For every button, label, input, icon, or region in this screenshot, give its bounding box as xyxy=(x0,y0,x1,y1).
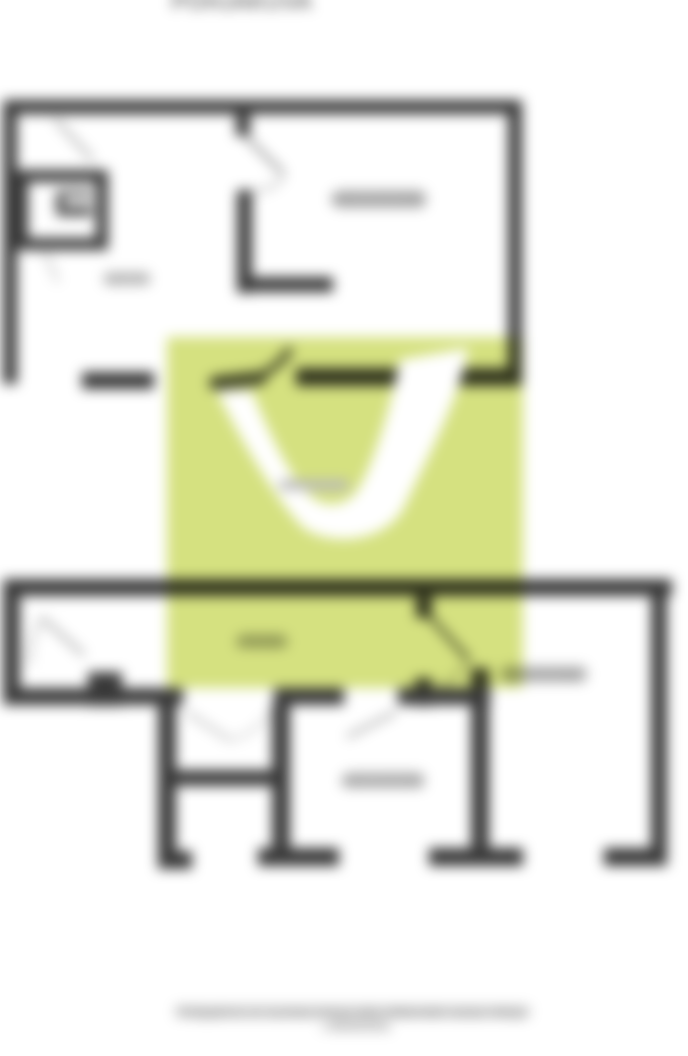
svg-text:mittakaavassa.: mittakaavassa. xyxy=(320,1022,393,1034)
svg-text:KEITTIÖ: KEITTIÖ xyxy=(104,275,150,287)
svg-text:MAKUUHUONE: MAKUUHUONE xyxy=(331,193,426,207)
svg-text:Pohjapiirros on suuntaa-antava: Pohjapiirros on suuntaa-antava eikä vält… xyxy=(179,1005,526,1020)
svg-text:MAKUUHUONE: MAKUUHUONE xyxy=(341,777,425,789)
svg-text:POHJAKUVA: POHJAKUVA xyxy=(172,0,313,14)
